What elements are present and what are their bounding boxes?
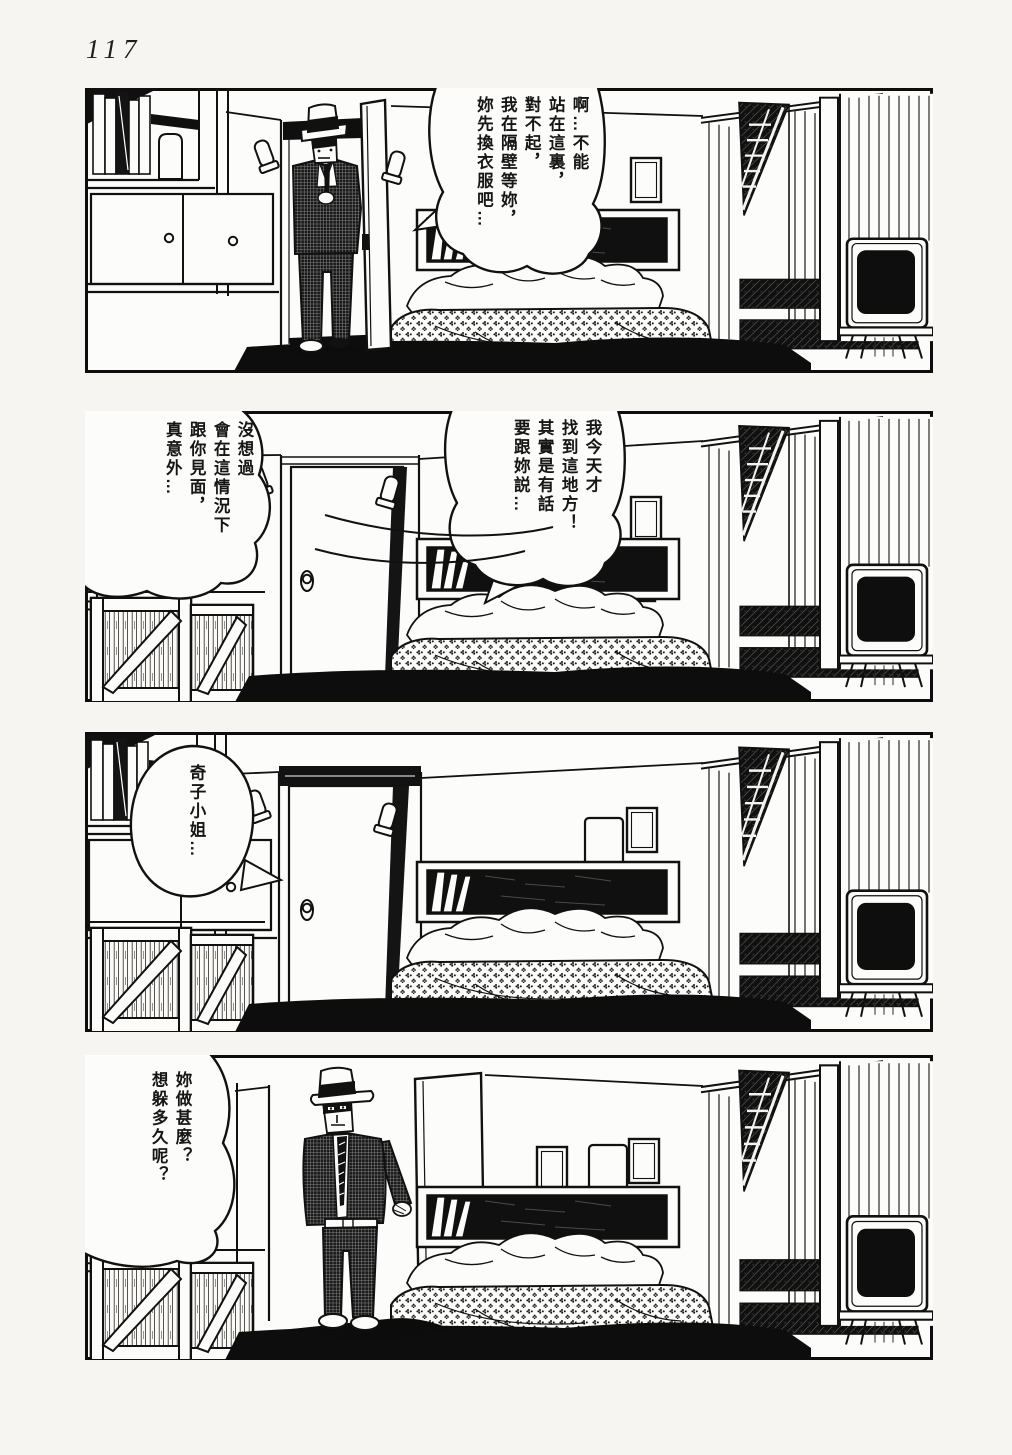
wooden-crates xyxy=(85,592,265,702)
speech-bubble-text: 妳做甚麼？ 想躲多久呢？ xyxy=(115,1071,193,1251)
panel-3: 奇子小姐… xyxy=(85,732,933,1032)
floor-shadow xyxy=(235,994,811,1032)
panel-4-art xyxy=(85,1055,933,1360)
picture-frame xyxy=(627,808,657,852)
door-knob xyxy=(303,575,311,583)
panel-1: 啊…不能 站在這裏， 對不起， 我在隔壁等妳， 妳先換衣服吧… xyxy=(85,88,933,373)
shoe xyxy=(319,1314,347,1328)
open-door xyxy=(361,100,391,350)
speech-bubble-text: 啊…不能 站在這裏， 對不起， 我在隔壁等妳， 妳先換衣服吧… xyxy=(440,96,590,258)
picture-frame xyxy=(629,1139,659,1183)
picture-frame xyxy=(631,497,661,541)
panel-3-art xyxy=(85,732,933,1032)
speech-bubble-text: 奇子小姐… xyxy=(173,764,207,894)
manga-page: 117 xyxy=(0,0,1012,1455)
speech-bubble-text: 沒想過 會在這情況下 跟你見面， 真意外… xyxy=(105,421,255,591)
picture-frame xyxy=(631,158,661,202)
page-number: 117 xyxy=(86,34,143,65)
panel-4: 妳做甚麼？ 想躲多久呢？ xyxy=(85,1055,933,1360)
shoe xyxy=(351,1316,379,1330)
door-knob xyxy=(303,904,311,912)
door-latch xyxy=(362,234,369,250)
wooden-crates xyxy=(85,922,265,1032)
panel-2: 我今天才 找到這地方！ 其實是有話 要跟妳説… 沒想過 會在這情況下 跟你見面，… xyxy=(85,411,933,702)
speech-bubble-text: 我今天才 找到這地方！ 其實是有話 要跟妳説… xyxy=(453,419,603,579)
picture-frame xyxy=(537,1147,567,1191)
